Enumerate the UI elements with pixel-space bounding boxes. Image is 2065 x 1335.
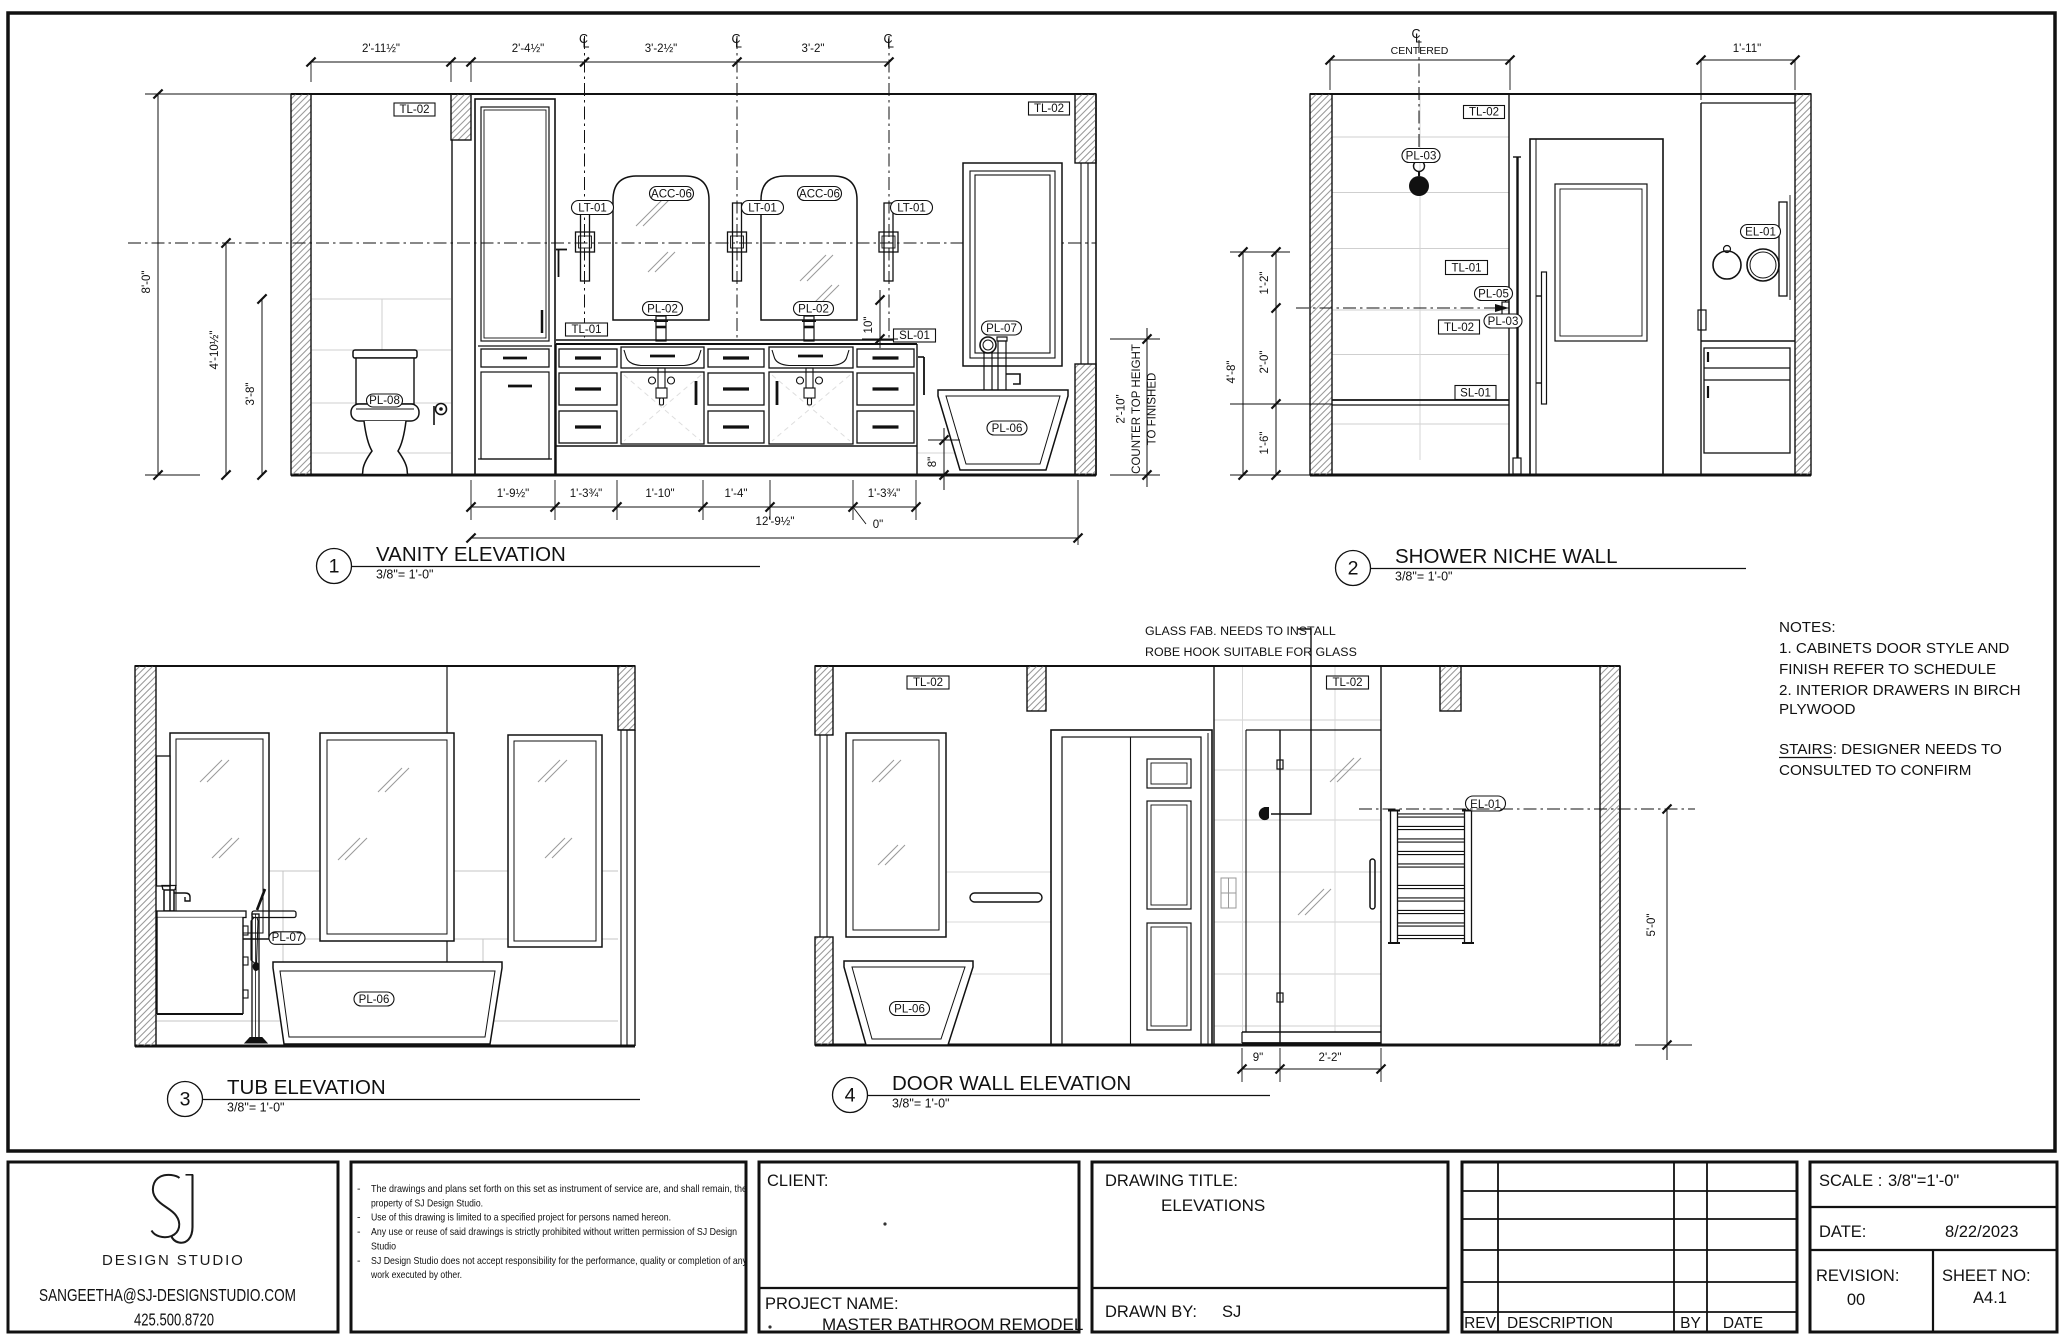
svg-text:SCALE :: SCALE :: [1819, 1172, 1882, 1190]
svg-text:3'-2½": 3'-2½": [645, 43, 678, 55]
svg-text:0": 0": [873, 519, 883, 531]
svg-text:3/8"=1'-0": 3/8"=1'-0": [1888, 1172, 1959, 1190]
svg-text:TUB ELEVATION: TUB ELEVATION: [227, 1076, 386, 1099]
svg-text:TO FINISHED: TO FINISHED: [1147, 373, 1159, 446]
svg-text:2: 2: [1348, 558, 1359, 580]
svg-text:2'-4½": 2'-4½": [512, 43, 545, 55]
svg-text:8/22/2023: 8/22/2023: [1945, 1223, 2018, 1241]
svg-text:property of SJ Design Studio.: property of SJ Design Studio.: [371, 1197, 483, 1209]
svg-text:1. CABINETS DOOR STYLE AND: 1. CABINETS DOOR STYLE AND: [1779, 640, 2009, 657]
svg-text:PL-06: PL-06: [359, 994, 390, 1006]
svg-text:SHEET NO:: SHEET NO:: [1942, 1267, 2031, 1285]
svg-text:Use of this drawing is limited: Use of this drawing is limited to a spec…: [371, 1212, 671, 1224]
svg-text:GLASS FAB. NEEDS TO INSTALL: GLASS FAB. NEEDS TO INSTALL: [1145, 624, 1336, 638]
svg-text:1'-3¾": 1'-3¾": [570, 488, 603, 500]
svg-text:SANGEETHA@SJ-DESIGNSTUDIO.COM: SANGEETHA@SJ-DESIGNSTUDIO.COM: [39, 1285, 296, 1305]
svg-text:TL-01: TL-01: [571, 324, 601, 336]
svg-text:4'-10½": 4'-10½": [209, 331, 221, 370]
svg-text:L: L: [583, 37, 590, 51]
svg-text:TL-02: TL-02: [1034, 103, 1064, 115]
svg-text:ROBE HOOK SUITABLE FOR GLASS: ROBE HOOK SUITABLE FOR GLASS: [1145, 645, 1357, 659]
svg-text:1'-4": 1'-4": [725, 488, 748, 500]
svg-text:2'-10": 2'-10": [1116, 394, 1128, 423]
svg-text:SL-01: SL-01: [899, 330, 930, 342]
svg-text:LT-01: LT-01: [578, 202, 607, 214]
svg-text:STAIRS: DESIGNER NEEDS TO: STAIRS: DESIGNER NEEDS TO: [1779, 741, 2002, 758]
svg-text:PROJECT NAME:: PROJECT NAME:: [765, 1295, 899, 1313]
svg-text:5'-0": 5'-0": [1646, 914, 1658, 937]
svg-text:4'-8": 4'-8": [1226, 361, 1238, 384]
svg-text:DRAWN BY:: DRAWN BY:: [1105, 1303, 1197, 1321]
svg-text:PL-02: PL-02: [798, 303, 829, 315]
svg-text:TL-02: TL-02: [1332, 677, 1362, 689]
svg-text:Any use or reuse of said drawi: Any use or reuse of said drawings is str…: [371, 1226, 737, 1238]
svg-text:SL-01: SL-01: [1460, 387, 1491, 399]
svg-text:-: -: [357, 1183, 361, 1195]
svg-text:VANITY ELEVATION: VANITY ELEVATION: [376, 543, 566, 566]
svg-text:TL-02: TL-02: [1469, 106, 1499, 118]
svg-text:DATE:: DATE:: [1819, 1223, 1866, 1241]
svg-text:FINISH REFER TO SCHEDULE: FINISH REFER TO SCHEDULE: [1779, 661, 1996, 678]
svg-text:PL-05: PL-05: [1478, 288, 1509, 300]
svg-text:DESCRIPTION: DESCRIPTION: [1507, 1315, 1613, 1332]
svg-text:1'-3¾": 1'-3¾": [868, 488, 901, 500]
svg-text:PLYWOOD: PLYWOOD: [1779, 701, 1856, 718]
svg-text:2'-2": 2'-2": [1319, 1052, 1342, 1064]
svg-text:work executed by other.: work executed by other.: [370, 1269, 462, 1281]
svg-text:3'-2": 3'-2": [802, 43, 825, 55]
svg-text:2'-11½": 2'-11½": [362, 43, 400, 55]
svg-text:1: 1: [329, 556, 340, 578]
svg-text:Studio: Studio: [371, 1240, 396, 1252]
svg-text:PL-02: PL-02: [647, 303, 678, 315]
svg-text:TL-02: TL-02: [1444, 322, 1474, 334]
svg-text:ACC-06: ACC-06: [651, 188, 692, 200]
svg-text:PL-07: PL-07: [272, 932, 303, 944]
svg-text:8'-0": 8'-0": [141, 271, 153, 294]
svg-text:SHOWER NICHE WALL: SHOWER NICHE WALL: [1395, 545, 1618, 568]
svg-text:EL-01: EL-01: [1745, 226, 1776, 238]
svg-text:L: L: [735, 37, 742, 51]
svg-text:-: -: [357, 1212, 361, 1224]
svg-text:LT-01: LT-01: [748, 202, 777, 214]
svg-text:TL-02: TL-02: [913, 677, 943, 689]
svg-text:1'-11": 1'-11": [1733, 43, 1761, 55]
svg-text:NOTES:: NOTES:: [1779, 619, 1836, 636]
svg-text:2'-0": 2'-0": [1259, 351, 1271, 374]
svg-text:3'-8": 3'-8": [245, 383, 257, 406]
svg-text:ELEVATIONS: ELEVATIONS: [1161, 1196, 1265, 1215]
svg-text:3: 3: [180, 1089, 191, 1111]
svg-text:SJ Design Studio does not acce: SJ Design Studio does not accept respons…: [371, 1255, 748, 1267]
svg-text:1'-10": 1'-10": [645, 488, 674, 500]
svg-text:DATE: DATE: [1723, 1315, 1763, 1332]
svg-text:COUNTER TOP HEIGHT: COUNTER TOP HEIGHT: [1131, 344, 1143, 474]
svg-text:DESIGN STUDIO: DESIGN STUDIO: [102, 1252, 248, 1269]
svg-text:PL-06: PL-06: [894, 1003, 925, 1015]
svg-text:TL-02: TL-02: [399, 104, 429, 116]
svg-text:CENTERED: CENTERED: [1391, 45, 1449, 57]
svg-text:PL-08: PL-08: [369, 395, 400, 407]
svg-text:3/8"= 1'-0": 3/8"= 1'-0": [376, 568, 433, 582]
svg-text:-: -: [357, 1255, 361, 1267]
svg-text:BY: BY: [1680, 1315, 1701, 1332]
svg-text:4: 4: [845, 1085, 856, 1107]
svg-text:8": 8": [927, 457, 939, 467]
svg-text:3/8"= 1'-0": 3/8"= 1'-0": [227, 1101, 284, 1115]
svg-text:DOOR WALL ELEVATION: DOOR WALL ELEVATION: [892, 1072, 1131, 1095]
svg-text:DRAWING TITLE:: DRAWING TITLE:: [1105, 1172, 1238, 1190]
svg-text:PL-03: PL-03: [1406, 150, 1437, 162]
svg-text:L: L: [887, 37, 894, 51]
svg-text:10": 10": [863, 317, 875, 334]
svg-text:PL-06: PL-06: [992, 423, 1023, 435]
svg-text:-: -: [357, 1226, 361, 1238]
svg-text:LT-01: LT-01: [897, 202, 926, 214]
svg-text:9": 9": [1253, 1052, 1263, 1064]
svg-text:CLIENT:: CLIENT:: [767, 1172, 828, 1190]
svg-text:3/8"= 1'-0": 3/8"= 1'-0": [892, 1097, 949, 1111]
svg-text:A4.1: A4.1: [1973, 1289, 2007, 1307]
svg-text:The drawings and plans set for: The drawings and plans set forth on this…: [371, 1183, 747, 1195]
svg-text:MASTER BATHROOM REMODEL: MASTER BATHROOM REMODEL: [822, 1315, 1083, 1334]
svg-text:PL-03: PL-03: [1488, 316, 1519, 328]
svg-text:12'-9½": 12'-9½": [756, 516, 795, 528]
svg-text:3/8"= 1'-0": 3/8"= 1'-0": [1395, 570, 1452, 584]
svg-text:00: 00: [1847, 1291, 1865, 1309]
svg-text:L: L: [1415, 32, 1422, 46]
svg-text:1'-6": 1'-6": [1259, 432, 1271, 455]
svg-text:SJ: SJ: [1222, 1303, 1241, 1321]
svg-text:CONSULTED TO CONFIRM: CONSULTED TO CONFIRM: [1779, 762, 1971, 779]
svg-text:2. INTERIOR DRAWERS IN BIRCH: 2. INTERIOR DRAWERS IN BIRCH: [1779, 682, 2021, 699]
svg-text:ACC-06: ACC-06: [799, 188, 840, 200]
svg-text:REVISION:: REVISION:: [1816, 1267, 1899, 1285]
svg-text:PL-07: PL-07: [986, 323, 1017, 335]
svg-text:425.500.8720: 425.500.8720: [134, 1310, 214, 1330]
svg-text:1'-9½": 1'-9½": [497, 488, 530, 500]
svg-text:REV: REV: [1464, 1315, 1497, 1332]
svg-text:TL-01: TL-01: [1451, 262, 1481, 274]
svg-text:1'-2": 1'-2": [1259, 272, 1271, 295]
